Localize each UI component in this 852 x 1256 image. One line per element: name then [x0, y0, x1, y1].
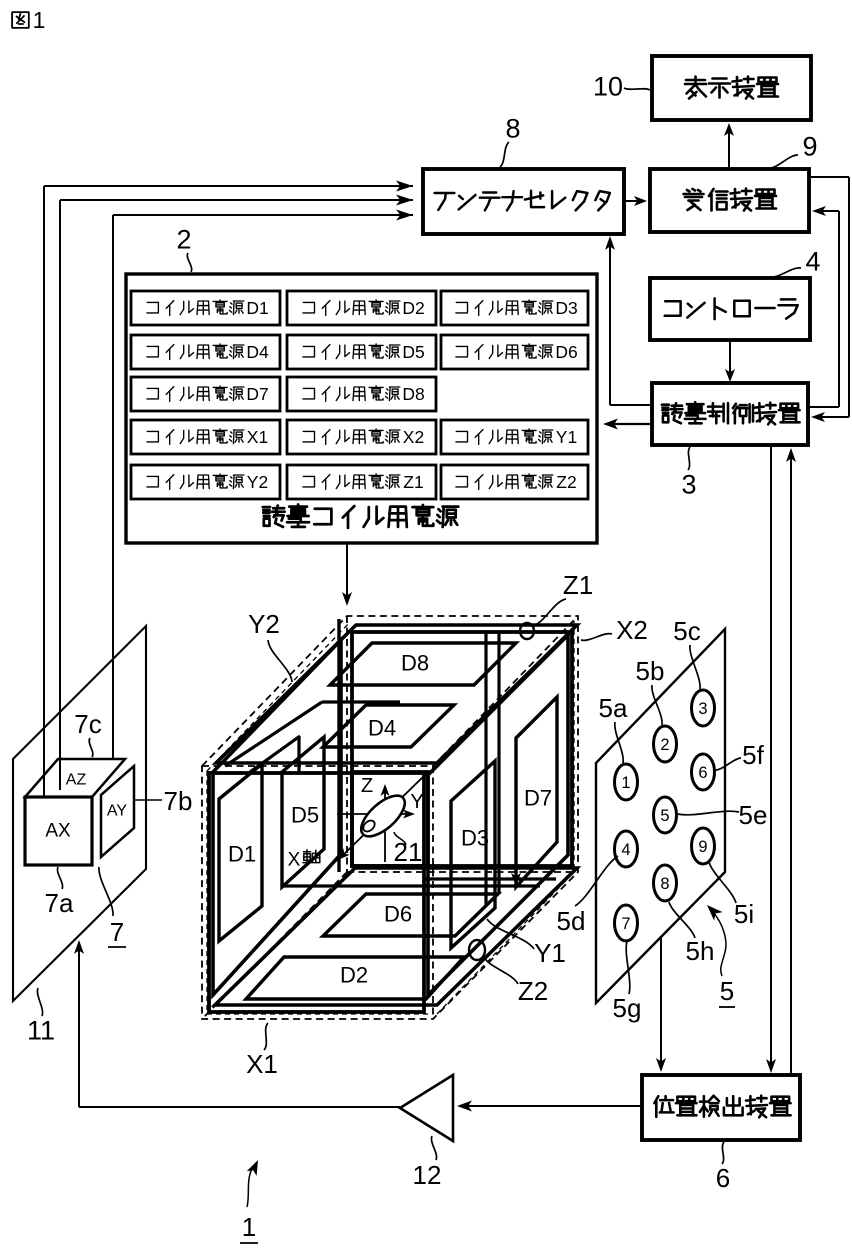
svg-text:4: 4 [621, 841, 630, 859]
svg-text:X2: X2 [403, 427, 424, 447]
svg-text:6: 6 [716, 1163, 730, 1193]
svg-text:X2: X2 [616, 615, 648, 645]
svg-text:5g: 5g [613, 993, 642, 1023]
svg-text:D7: D7 [246, 384, 268, 404]
svg-text:5b: 5b [636, 656, 665, 686]
svg-text:3: 3 [681, 469, 696, 499]
svg-text:7: 7 [621, 915, 630, 933]
svg-text:2: 2 [660, 736, 669, 754]
svg-text:5c: 5c [673, 616, 700, 646]
svg-text:Y1: Y1 [556, 427, 577, 447]
svg-text:X: X [288, 850, 301, 871]
svg-text:Y2: Y2 [247, 472, 268, 492]
svg-text:AX: AX [45, 821, 71, 842]
svg-text:7c: 7c [74, 709, 101, 739]
svg-text:8: 8 [505, 113, 520, 143]
svg-text:D6: D6 [555, 342, 577, 362]
svg-text:D4: D4 [368, 716, 396, 741]
svg-text:Y: Y [410, 791, 423, 813]
svg-text:D5: D5 [291, 803, 319, 828]
svg-text:Y1: Y1 [534, 938, 566, 968]
svg-text:AZ: AZ [66, 772, 87, 789]
svg-text:5d: 5d [557, 906, 586, 936]
svg-text:7: 7 [110, 917, 124, 947]
svg-text:D1: D1 [246, 298, 268, 318]
svg-text:D1: D1 [228, 842, 256, 867]
svg-text:4: 4 [805, 246, 820, 276]
svg-text:7b: 7b [164, 786, 193, 816]
svg-text:X1: X1 [247, 427, 268, 447]
svg-text:D8: D8 [402, 384, 424, 404]
svg-text:5i: 5i [734, 899, 754, 929]
svg-text:D5: D5 [402, 342, 424, 362]
svg-text:D3: D3 [461, 826, 489, 851]
svg-text:Z: Z [361, 775, 373, 797]
svg-text:Y2: Y2 [248, 609, 280, 639]
svg-text:D2: D2 [402, 298, 424, 318]
svg-text:6: 6 [698, 764, 707, 782]
svg-text:21: 21 [394, 837, 423, 867]
svg-text:5f: 5f [742, 740, 764, 770]
svg-text:5: 5 [720, 976, 734, 1006]
svg-text:D4: D4 [246, 342, 269, 362]
svg-text:5e: 5e [739, 800, 768, 830]
svg-text:5: 5 [660, 807, 669, 825]
svg-text:Z1: Z1 [403, 472, 423, 492]
svg-text:D3: D3 [555, 298, 577, 318]
svg-text:D2: D2 [340, 963, 368, 988]
svg-text:1: 1 [242, 1212, 256, 1242]
svg-text:9: 9 [802, 131, 817, 161]
svg-text:1: 1 [33, 7, 46, 33]
svg-text:Z1: Z1 [563, 570, 593, 600]
svg-text:8: 8 [660, 875, 669, 893]
svg-text:Z2: Z2 [518, 976, 548, 1006]
svg-text:3: 3 [698, 700, 707, 718]
svg-text:X1: X1 [246, 1049, 278, 1079]
svg-text:7a: 7a [45, 888, 74, 918]
svg-text:5a: 5a [599, 693, 628, 723]
svg-text:AY: AY [107, 803, 127, 820]
svg-text:1: 1 [621, 774, 630, 792]
svg-text:11: 11 [27, 1016, 55, 1046]
svg-text:Z2: Z2 [556, 472, 576, 492]
svg-text:5h: 5h [686, 936, 715, 966]
svg-text:12: 12 [413, 1160, 442, 1190]
svg-text:D6: D6 [384, 902, 412, 927]
svg-text:10: 10 [593, 72, 623, 102]
svg-text:2: 2 [176, 224, 191, 254]
svg-text:9: 9 [698, 838, 707, 856]
svg-text:D7: D7 [524, 786, 552, 811]
svg-text:D8: D8 [401, 651, 429, 676]
